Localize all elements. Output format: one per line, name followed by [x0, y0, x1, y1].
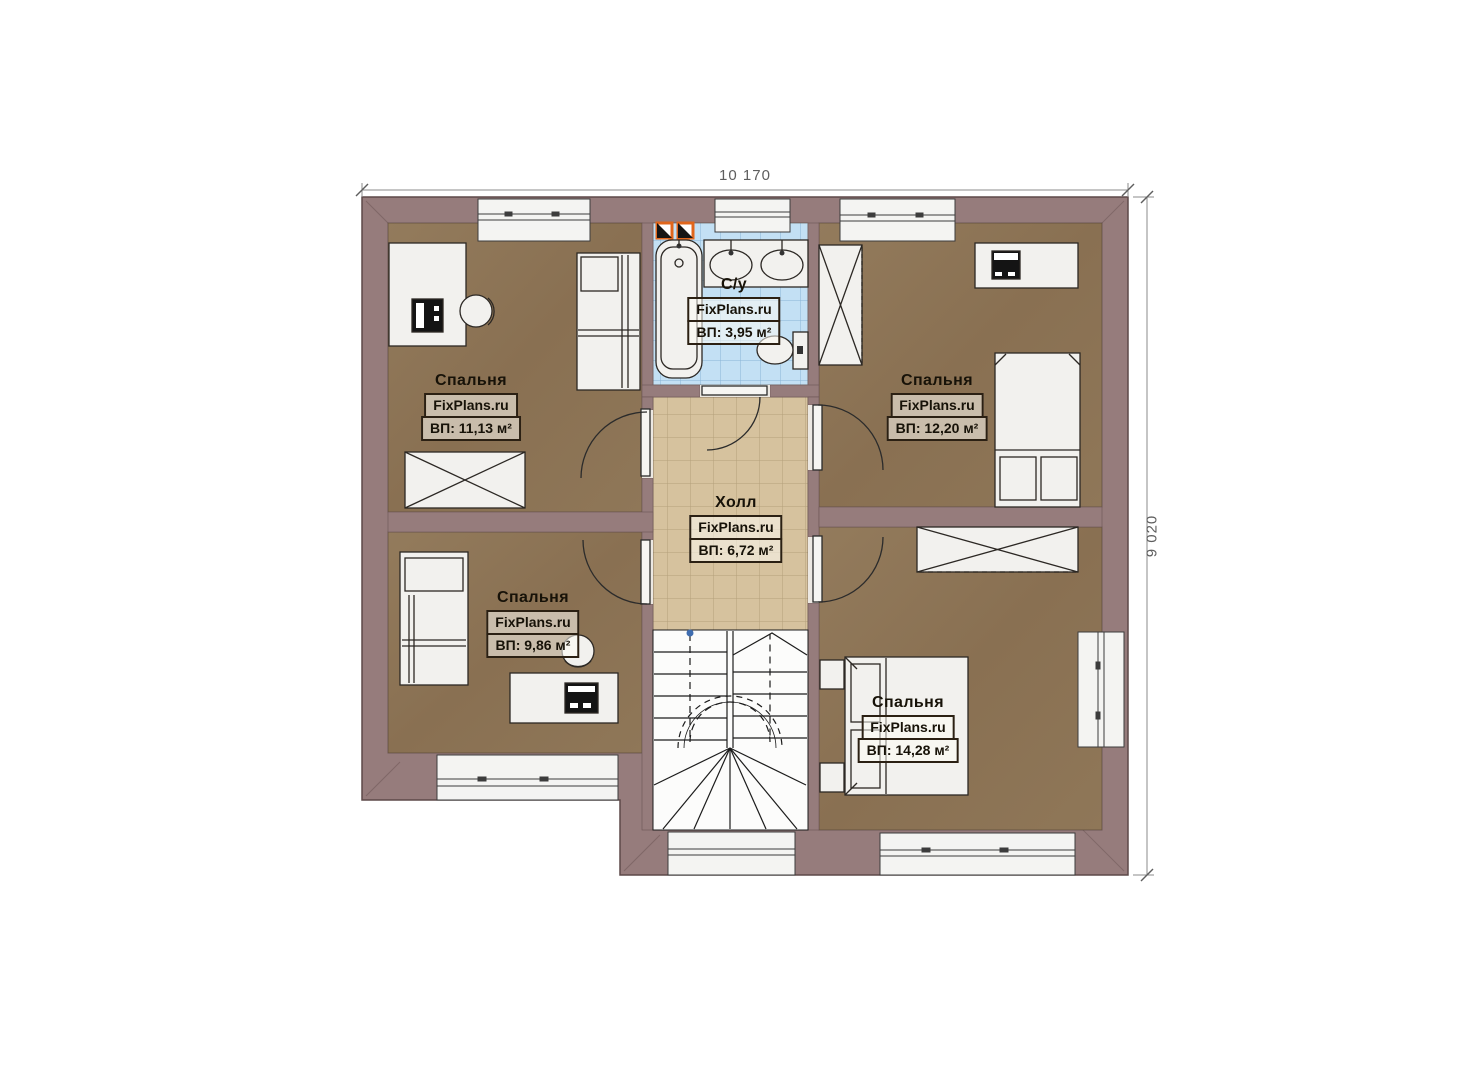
wardrobe-top-right: [819, 245, 862, 365]
window-bottom-left-bedroom: [437, 755, 618, 800]
room-area-badge: ВП: 6,72 м²: [690, 538, 783, 563]
room-area-badge: ВП: 3,95 м²: [688, 320, 781, 345]
room-name: С/у: [721, 276, 747, 294]
dimension-height-label: 9 020: [1144, 515, 1161, 558]
floor-plan-page: 10 170 9 020 Спальня FixPlans.ru ВП: 11,…: [0, 0, 1473, 1080]
room-area-badge: ВП: 9,86 м²: [487, 633, 580, 658]
room-name: Холл: [715, 494, 757, 512]
bed-bottom-left: [400, 552, 468, 685]
room-name: Спальня: [872, 694, 944, 712]
window-bathroom: [715, 199, 790, 232]
vent-shaft-icon: [657, 223, 672, 238]
wardrobe-top-left: [405, 452, 525, 508]
label-bedroom-bottom-left: Спальня FixPlans.ru ВП: 9,86 м²: [486, 589, 579, 658]
desk-bottom-left: [510, 673, 618, 723]
label-bedroom-top-right: Спальня FixPlans.ru ВП: 12,20 м²: [887, 372, 988, 441]
room-area-badge: ВП: 12,20 м²: [887, 416, 988, 441]
room-name: Спальня: [435, 372, 507, 390]
label-bathroom: С/у FixPlans.ru ВП: 3,95 м²: [687, 276, 780, 345]
room-area-badge: ВП: 11,13 м²: [421, 416, 521, 441]
staircase: [653, 630, 808, 831]
room-brand-badge: FixPlans.ru: [424, 393, 517, 418]
window-bottom-right-bedroom: [880, 833, 1075, 875]
room-brand-badge: FixPlans.ru: [689, 515, 782, 540]
nightstand-bottom: [820, 763, 844, 792]
desk-top-right: [975, 243, 1078, 288]
wardrobe-bottom-right: [917, 527, 1078, 572]
dimension-top: [356, 183, 1134, 197]
label-bedroom-top-left: Спальня FixPlans.ru ВП: 11,13 м²: [421, 372, 521, 441]
nightstand-top: [820, 660, 844, 689]
bed-top-right: [995, 353, 1080, 507]
room-area-badge: ВП: 14,28 м²: [858, 738, 959, 763]
window-stairwell: [668, 832, 795, 875]
stair-start-dot: [687, 630, 694, 637]
room-name: Спальня: [901, 372, 973, 390]
dimension-width-label: 10 170: [719, 167, 771, 184]
window-top-left-bedroom: [478, 199, 590, 241]
bed-top-left: [577, 253, 640, 390]
window-right-bedroom: [1078, 632, 1124, 747]
room-brand-badge: FixPlans.ru: [486, 610, 579, 635]
label-bedroom-bottom-right: Спальня FixPlans.ru ВП: 14,28 м²: [858, 694, 959, 763]
room-name: Спальня: [497, 589, 569, 607]
chair-top-left: [460, 295, 492, 327]
computer-bottom-left: [565, 683, 598, 713]
window-top-right-bedroom: [840, 199, 955, 241]
tv-top-right: [992, 251, 1020, 279]
room-brand-badge: FixPlans.ru: [861, 715, 954, 740]
room-brand-badge: FixPlans.ru: [890, 393, 983, 418]
vent-shaft-icon: [678, 223, 693, 238]
room-brand-badge: FixPlans.ru: [687, 297, 780, 322]
label-hall: Холл FixPlans.ru ВП: 6,72 м²: [689, 494, 782, 563]
